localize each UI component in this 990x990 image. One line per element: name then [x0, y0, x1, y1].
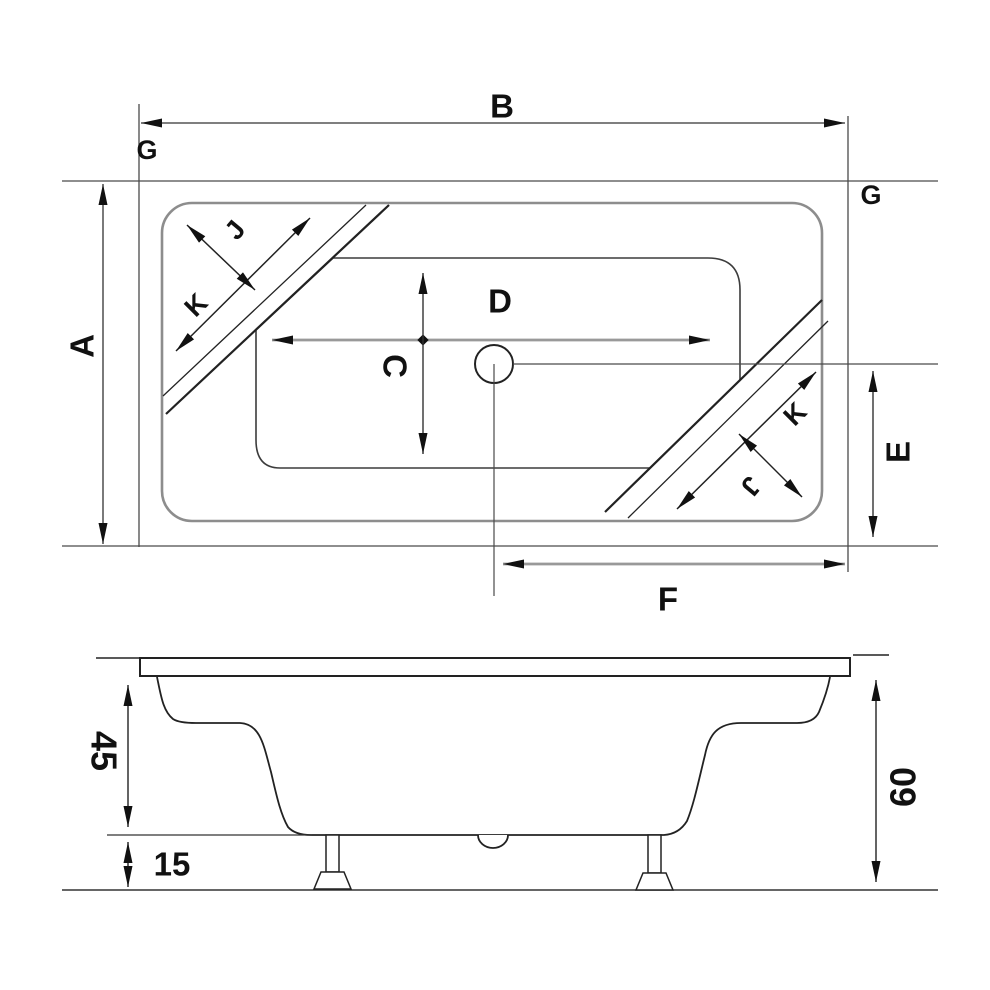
- dim-label-60: 60: [883, 767, 924, 807]
- rim-bar: [140, 658, 850, 676]
- dim-label-G-right: G: [860, 180, 881, 210]
- dim-label-J-topleft: J: [219, 215, 252, 246]
- dim-inner-width: C: [377, 273, 424, 454]
- drain-trap: [478, 835, 508, 848]
- bathtub-technical-drawing: B A G G D C E F: [0, 0, 990, 990]
- dim-label-E: E: [880, 441, 917, 463]
- drawing-svg: B A G G D C E F: [0, 0, 990, 990]
- dim-drain-to-end: F: [503, 564, 845, 618]
- foot-left-stem: [326, 835, 339, 872]
- dim-label-G-left: G: [136, 135, 157, 165]
- dim-label-45: 45: [84, 731, 125, 771]
- dim-label-K-topleft: K: [178, 287, 213, 322]
- dim-overall-width: A: [64, 184, 104, 544]
- dim-label-J-bottomright: J: [735, 471, 768, 502]
- foot-right-stem: [648, 835, 661, 873]
- plan-view: B A G G D C E F: [62, 88, 938, 618]
- dim-overall-length: B: [141, 88, 845, 125]
- dim-corner-topleft: K J: [176, 215, 310, 351]
- foot-left: [314, 835, 351, 889]
- dim-label-F: F: [658, 581, 678, 618]
- dim-drain-to-edge: E: [873, 371, 917, 537]
- dim-label-D: D: [488, 283, 512, 320]
- foot-right-base: [636, 873, 673, 890]
- side-view: 45 15 60: [62, 655, 938, 890]
- foot-left-base: [314, 872, 351, 889]
- dim-label-B: B: [490, 88, 514, 125]
- dim-label-K-bottomright: K: [777, 396, 812, 431]
- dim-label-A: A: [64, 334, 101, 358]
- dim-total-height: 60: [876, 680, 924, 882]
- dim-inner-length: D: [272, 283, 710, 346]
- dim-leg-clearance: 15: [128, 842, 190, 887]
- dim-corner-bottomright: K J: [677, 372, 816, 509]
- dim-label-15: 15: [154, 846, 191, 883]
- dim-body-height: 45: [84, 685, 129, 827]
- foot-right: [636, 835, 673, 890]
- dim-label-C: C: [377, 354, 414, 378]
- tub-profile: [157, 677, 830, 835]
